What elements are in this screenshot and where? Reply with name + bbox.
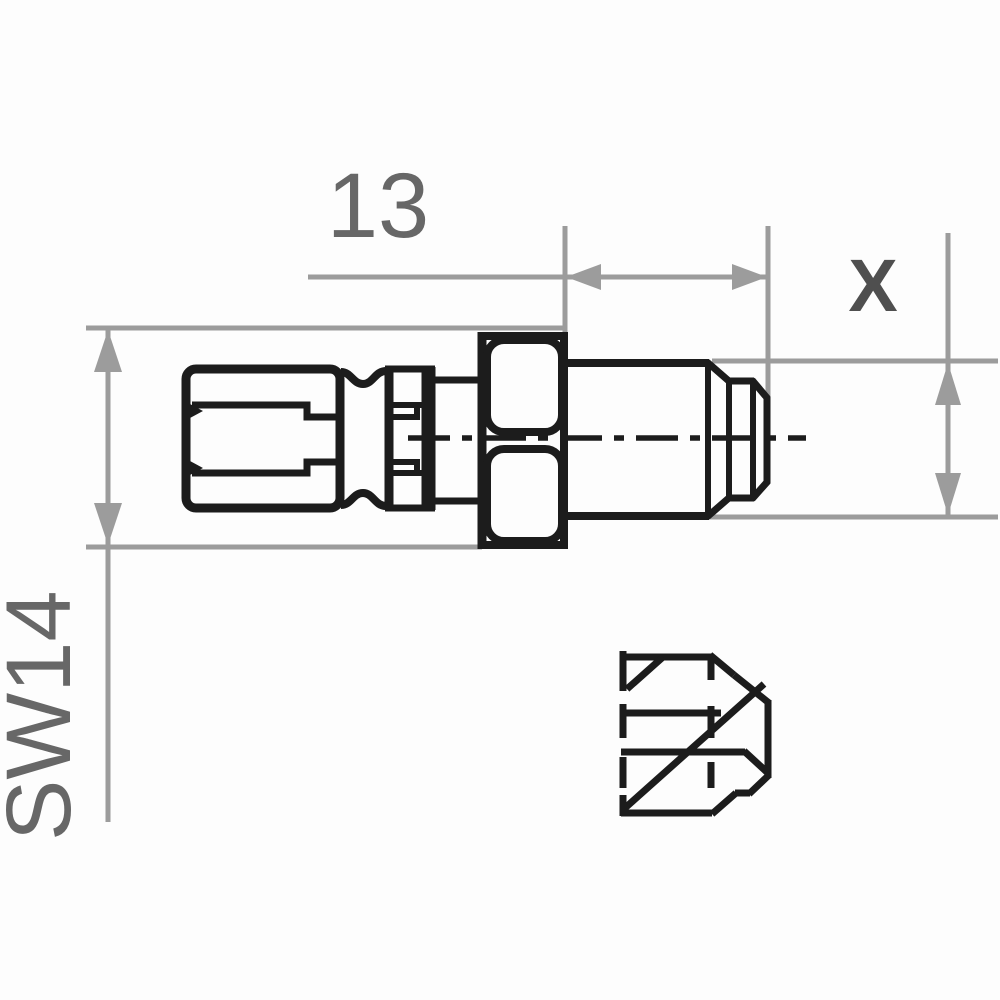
hex-facet-bottom (487, 449, 562, 541)
crimp-socket (186, 369, 340, 508)
sw14-label: SW14 (0, 590, 90, 841)
flare-long-diagonal (625, 684, 764, 808)
socket-bore-upper (192, 405, 337, 417)
hex-facet-top (487, 340, 562, 432)
dim13-arrowhead-left (566, 264, 601, 290)
x-arrowhead-down (935, 473, 961, 515)
hose-bulge (341, 371, 386, 506)
detail-view-flare (621, 651, 769, 816)
flare-bottom-chamfer (712, 793, 736, 814)
flare-break-diagonal-top (627, 657, 663, 689)
socket-bore-lower (192, 462, 337, 473)
bulge-top (341, 371, 386, 384)
x-arrowhead-up (935, 363, 961, 405)
fitting-technical-drawing: SW14 13 X (0, 0, 1000, 1000)
flare-cone-outer-bottom (749, 775, 769, 794)
sw14-arrowhead-up (94, 330, 122, 372)
dim13-label: 13 (327, 155, 429, 257)
thread-x-label: X (848, 244, 897, 327)
bulge-bottom (341, 493, 386, 506)
technical-drawing-page: SW14 13 X (0, 0, 1000, 1000)
sw14-arrowhead-down (94, 503, 122, 545)
socket-outline (186, 369, 340, 508)
dim13-arrowhead-right (732, 264, 767, 290)
